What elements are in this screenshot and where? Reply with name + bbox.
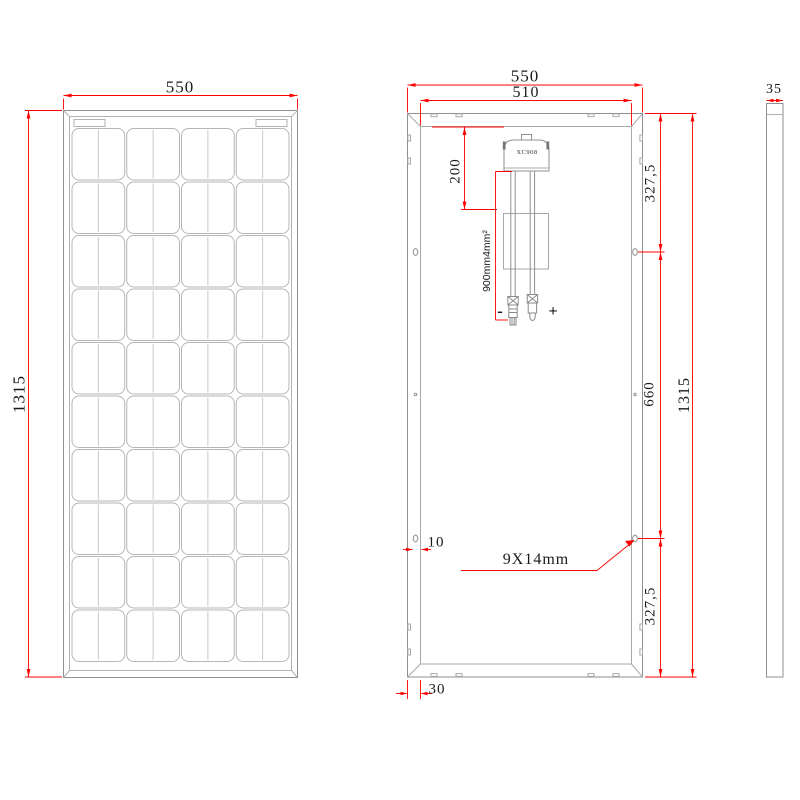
back-corner-miters bbox=[408, 114, 643, 678]
busbar-pad-right bbox=[256, 120, 287, 127]
top-hole-offset-label: 327,5 bbox=[644, 164, 659, 203]
junction-box-clip-right bbox=[546, 142, 549, 150]
junction-box-tab bbox=[522, 135, 532, 141]
junction-box-clip-left bbox=[503, 142, 506, 150]
mounting-holes bbox=[413, 249, 637, 542]
drain-slots bbox=[408, 114, 643, 676]
dimension-arrowheads bbox=[27, 83, 783, 695]
junction-box-model-label: XC908 bbox=[516, 150, 537, 157]
label-sticker bbox=[504, 214, 549, 270]
back-frame-inner bbox=[421, 127, 632, 665]
front-height-label: 1315 bbox=[11, 375, 28, 413]
drain-edge-offset-label: 30 bbox=[429, 683, 446, 698]
back-height-label: 1315 bbox=[677, 377, 693, 413]
hole-spacing-label: 660 bbox=[643, 381, 658, 407]
junction-box-offset-label: 200 bbox=[449, 158, 464, 184]
back-frame-outer bbox=[408, 114, 643, 678]
front-width-label: 550 bbox=[166, 79, 195, 96]
front-view bbox=[64, 111, 298, 678]
bottom-hole-offset-label: 327,5 bbox=[644, 587, 659, 626]
side-profile bbox=[767, 104, 784, 678]
back-outer-width-label: 550 bbox=[511, 68, 540, 85]
output-cables bbox=[511, 171, 535, 297]
negative-sign: - bbox=[497, 303, 503, 320]
dimension-lines bbox=[25, 85, 783, 699]
back-view bbox=[408, 114, 643, 678]
cable-spec-label: 900mm4mm² bbox=[482, 230, 493, 292]
mounting-hole-size-label: 9X14mm bbox=[503, 552, 569, 568]
back-inner-width-label: 510 bbox=[513, 85, 540, 101]
positive-sign: + bbox=[548, 304, 557, 320]
busbar-pad-left bbox=[74, 120, 105, 127]
hole-edge-offset-label: 10 bbox=[428, 536, 445, 551]
technical-drawing: 550 1315 550 510 327,5 660 327,5 1315 20… bbox=[0, 0, 800, 800]
negative-connector bbox=[508, 297, 518, 326]
side-view bbox=[767, 104, 784, 678]
side-thickness-label: 35 bbox=[766, 83, 782, 97]
positive-connector bbox=[527, 295, 537, 321]
solar-cell-grid bbox=[72, 129, 289, 662]
